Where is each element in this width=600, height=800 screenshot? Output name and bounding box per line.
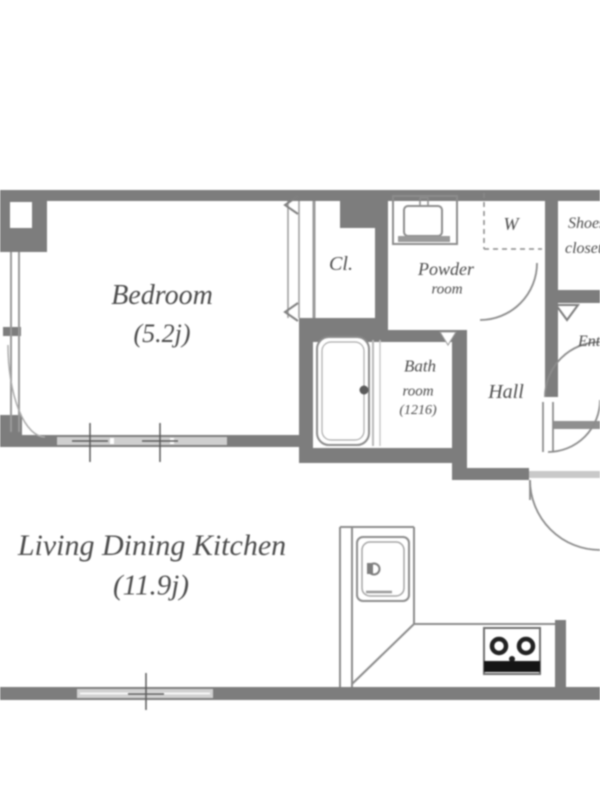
bath-bottom-wall	[299, 448, 467, 463]
floorplan-image: Bedroom (5.2j) Cl. Powder room W Shoes c…	[0, 0, 600, 800]
bathtub	[317, 337, 380, 446]
bath-door-knob	[360, 386, 369, 395]
powder-room-label-1: Powder	[418, 260, 474, 278]
powder-sink-front	[398, 236, 450, 242]
bathroom-label-2: room	[402, 385, 433, 400]
floorplan: Bedroom (5.2j) Cl. Powder room W Shoes c…	[0, 0, 600, 800]
slider-chevron-bottom	[285, 303, 298, 321]
stove-burner-right	[519, 639, 533, 653]
bedroom-left-window	[11, 252, 19, 432]
bathroom-size-label: (1216)	[399, 404, 436, 418]
shoes-closet-label-2: closet	[565, 241, 600, 257]
top-wall	[0, 190, 600, 201]
washer-label: W	[504, 215, 519, 233]
bedroom-area-label: (5.2j)	[133, 321, 190, 347]
door-arcs	[480, 263, 600, 550]
ldk-label: Living Dining Kitchen	[18, 531, 286, 561]
bedroom-label: Bedroom	[111, 282, 213, 310]
hall-ldk-door	[530, 480, 600, 550]
powder-door-arc	[480, 263, 537, 320]
entry-direction-arrow	[556, 305, 578, 320]
hall-bottom-wall	[467, 468, 529, 480]
stove	[484, 628, 540, 674]
ldk-area-label: (11.9j)	[113, 572, 189, 601]
powder-sink	[393, 196, 457, 244]
hall-ldk-door-arc	[530, 480, 600, 550]
stove-front	[484, 661, 540, 672]
pillar-top-left	[0, 190, 47, 252]
closet-label: Cl.	[329, 254, 353, 274]
ldk-door-track	[529, 471, 600, 478]
counter-diagonal	[352, 624, 414, 684]
closet-powder-divider-wall	[375, 190, 388, 332]
entrance-label: Entrance	[578, 334, 600, 350]
shoes-closet-label-1: Shoes	[568, 216, 600, 232]
bedroom-right-sliding-door	[285, 196, 299, 321]
hall-label: Hall	[488, 382, 524, 402]
bathroom-label-1: Bath	[404, 358, 436, 375]
stove-burner-left	[492, 639, 506, 653]
closet-top-notch	[340, 201, 378, 228]
shoes-closet-bottom-wall	[552, 290, 600, 303]
powder-room-label-2: room	[431, 283, 462, 298]
kitchen-sink	[357, 537, 409, 601]
kitchen-end-wall	[555, 620, 566, 688]
closet-bottom-wall	[299, 318, 379, 332]
